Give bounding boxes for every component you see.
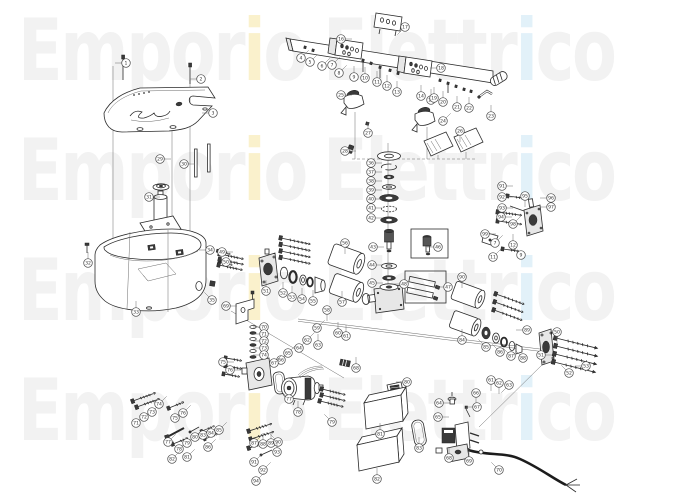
svg-text:52: 52 bbox=[566, 371, 572, 377]
svg-text:28: 28 bbox=[342, 149, 348, 155]
svg-text:66: 66 bbox=[278, 358, 284, 364]
svg-text:78: 78 bbox=[295, 410, 301, 416]
svg-text:79: 79 bbox=[184, 441, 190, 447]
svg-text:21: 21 bbox=[454, 105, 460, 111]
valve-washer-stack bbox=[362, 152, 404, 313]
svg-text:59: 59 bbox=[314, 326, 320, 332]
svg-text:74: 74 bbox=[156, 402, 162, 408]
svg-text:12: 12 bbox=[510, 243, 516, 249]
svg-text:41: 41 bbox=[368, 206, 374, 212]
svg-text:93: 93 bbox=[274, 450, 280, 456]
solenoid-valve bbox=[436, 392, 580, 492]
svg-text:61: 61 bbox=[343, 334, 349, 340]
svg-text:77: 77 bbox=[165, 440, 171, 446]
svg-text:5: 5 bbox=[309, 60, 312, 66]
svg-text:30: 30 bbox=[181, 162, 187, 168]
svg-text:19: 19 bbox=[431, 96, 437, 102]
svg-text:73: 73 bbox=[149, 410, 155, 416]
svg-text:71: 71 bbox=[133, 421, 139, 427]
svg-text:12: 12 bbox=[384, 84, 390, 90]
svg-text:6: 6 bbox=[321, 64, 324, 70]
top-cover-plate bbox=[104, 55, 215, 132]
svg-text:82: 82 bbox=[374, 477, 380, 483]
svg-text:50: 50 bbox=[223, 260, 229, 266]
piston bbox=[385, 229, 394, 252]
valve-body bbox=[368, 284, 404, 313]
svg-text:50: 50 bbox=[554, 330, 560, 336]
svg-text:70: 70 bbox=[496, 468, 502, 474]
svg-text:47: 47 bbox=[445, 285, 451, 291]
svg-text:68: 68 bbox=[446, 456, 452, 462]
svg-text:66: 66 bbox=[473, 391, 479, 397]
svg-text:7: 7 bbox=[331, 63, 334, 69]
svg-text:65: 65 bbox=[435, 415, 441, 421]
svg-text:83: 83 bbox=[200, 433, 206, 439]
svg-text:51: 51 bbox=[538, 353, 544, 359]
svg-text:54: 54 bbox=[299, 297, 305, 303]
svg-text:3: 3 bbox=[212, 111, 215, 117]
heater-column bbox=[140, 144, 210, 236]
svg-text:95: 95 bbox=[522, 194, 528, 200]
svg-text:40: 40 bbox=[368, 197, 374, 203]
svg-text:39: 39 bbox=[368, 188, 374, 194]
svg-text:87: 87 bbox=[251, 441, 257, 447]
svg-text:68: 68 bbox=[353, 366, 359, 372]
svg-text:69: 69 bbox=[223, 304, 229, 310]
svg-text:37: 37 bbox=[368, 170, 374, 176]
svg-text:45: 45 bbox=[369, 281, 375, 287]
svg-text:11: 11 bbox=[374, 80, 380, 86]
svg-text:38: 38 bbox=[368, 179, 374, 185]
svg-text:9: 9 bbox=[353, 75, 356, 81]
svg-text:90: 90 bbox=[459, 275, 465, 281]
svg-text:85: 85 bbox=[216, 428, 222, 434]
svg-text:8: 8 bbox=[338, 71, 341, 77]
svg-text:43: 43 bbox=[370, 245, 376, 251]
mid-bracket-valve bbox=[222, 291, 287, 395]
svg-text:75: 75 bbox=[220, 360, 226, 366]
svg-text:96: 96 bbox=[548, 196, 554, 202]
svg-text:79: 79 bbox=[329, 420, 335, 426]
svg-text:63: 63 bbox=[506, 383, 512, 389]
svg-text:9: 9 bbox=[520, 253, 523, 259]
svg-text:94: 94 bbox=[498, 215, 504, 221]
svg-text:51: 51 bbox=[263, 289, 269, 295]
svg-text:94: 94 bbox=[253, 479, 259, 485]
svg-text:67: 67 bbox=[271, 361, 277, 367]
svg-text:84: 84 bbox=[208, 431, 214, 437]
svg-text:18: 18 bbox=[438, 66, 444, 72]
svg-text:81: 81 bbox=[184, 455, 190, 461]
svg-text:92: 92 bbox=[499, 195, 505, 201]
power-cable bbox=[468, 450, 580, 492]
svg-text:83: 83 bbox=[416, 446, 422, 452]
svg-text:82: 82 bbox=[169, 457, 175, 463]
svg-text:89: 89 bbox=[524, 328, 530, 334]
svg-text:85: 85 bbox=[483, 345, 489, 351]
svg-text:89: 89 bbox=[268, 441, 274, 447]
svg-text:69: 69 bbox=[466, 459, 472, 465]
svg-text:29: 29 bbox=[157, 157, 163, 163]
svg-text:64: 64 bbox=[436, 401, 442, 407]
svg-text:62: 62 bbox=[496, 381, 502, 387]
svg-text:22: 22 bbox=[466, 106, 472, 112]
svg-text:17: 17 bbox=[402, 25, 408, 31]
svg-text:67: 67 bbox=[474, 405, 480, 411]
svg-text:77: 77 bbox=[286, 397, 292, 403]
svg-text:52: 52 bbox=[280, 291, 286, 297]
svg-text:35: 35 bbox=[209, 298, 215, 304]
svg-text:53: 53 bbox=[583, 364, 589, 370]
svg-text:65: 65 bbox=[285, 351, 291, 357]
svg-text:80: 80 bbox=[404, 380, 410, 386]
boiler-cylinder-1 bbox=[327, 243, 367, 275]
svg-text:49: 49 bbox=[219, 250, 225, 256]
svg-text:61: 61 bbox=[488, 378, 494, 384]
svg-text:46: 46 bbox=[435, 245, 441, 251]
svg-text:57: 57 bbox=[339, 300, 345, 306]
svg-text:87: 87 bbox=[508, 354, 514, 360]
svg-text:99: 99 bbox=[482, 232, 488, 238]
svg-text:31: 31 bbox=[146, 195, 152, 201]
svg-text:97: 97 bbox=[548, 205, 554, 211]
svg-text:90: 90 bbox=[275, 440, 281, 446]
svg-text:80: 80 bbox=[192, 435, 198, 441]
svg-text:62: 62 bbox=[304, 338, 310, 344]
svg-text:74: 74 bbox=[261, 353, 267, 359]
svg-text:91: 91 bbox=[251, 460, 257, 466]
svg-text:88: 88 bbox=[520, 356, 526, 362]
svg-text:88: 88 bbox=[260, 442, 266, 448]
svg-text:16: 16 bbox=[338, 37, 344, 43]
svg-text:33: 33 bbox=[133, 310, 139, 316]
svg-text:86: 86 bbox=[205, 445, 211, 451]
svg-text:25: 25 bbox=[338, 93, 344, 99]
svg-text:60: 60 bbox=[335, 331, 341, 337]
svg-text:11: 11 bbox=[490, 255, 496, 261]
svg-text:34: 34 bbox=[207, 248, 213, 254]
svg-text:53: 53 bbox=[289, 295, 295, 301]
svg-text:91: 91 bbox=[499, 184, 505, 190]
svg-text:1: 1 bbox=[125, 61, 128, 67]
boiler-cylinder-2 bbox=[328, 273, 365, 304]
svg-text:42: 42 bbox=[368, 216, 374, 222]
svg-text:2: 2 bbox=[200, 77, 203, 83]
svg-text:76: 76 bbox=[180, 411, 186, 417]
parts-catalog-page: EmporioElettrico EmporioElettrico Empori… bbox=[0, 0, 694, 500]
svg-text:86: 86 bbox=[497, 350, 503, 356]
svg-text:24: 24 bbox=[440, 119, 446, 125]
svg-text:92: 92 bbox=[260, 468, 266, 474]
svg-text:44: 44 bbox=[369, 263, 375, 269]
steam-knob-right bbox=[412, 106, 435, 132]
svg-text:72: 72 bbox=[141, 415, 147, 421]
svg-text:58: 58 bbox=[324, 308, 330, 314]
svg-text:23: 23 bbox=[488, 114, 494, 120]
group-head-flange bbox=[259, 249, 278, 286]
svg-text:32: 32 bbox=[85, 261, 91, 267]
svg-text:64: 64 bbox=[296, 346, 302, 352]
svg-text:84: 84 bbox=[459, 338, 465, 344]
svg-text:81: 81 bbox=[377, 432, 383, 438]
svg-text:27: 27 bbox=[365, 131, 371, 137]
svg-text:75: 75 bbox=[172, 416, 178, 422]
svg-text:10: 10 bbox=[362, 76, 368, 82]
svg-text:63: 63 bbox=[315, 343, 321, 349]
svg-text:36: 36 bbox=[368, 161, 374, 167]
svg-text:48: 48 bbox=[401, 282, 407, 288]
exploded-parts-diagram: 1234567891011121314151617181920212223242… bbox=[0, 0, 694, 500]
svg-text:20: 20 bbox=[440, 100, 446, 106]
svg-text:55: 55 bbox=[310, 299, 316, 305]
svg-text:4: 4 bbox=[300, 56, 303, 62]
casing-boxes bbox=[357, 382, 427, 471]
drip-tray-wedges bbox=[424, 128, 483, 156]
svg-text:13: 13 bbox=[394, 90, 400, 96]
svg-text:76: 76 bbox=[227, 368, 233, 374]
svg-text:98: 98 bbox=[510, 222, 516, 228]
svg-text:93: 93 bbox=[499, 206, 505, 212]
svg-text:26: 26 bbox=[457, 129, 463, 135]
svg-text:14: 14 bbox=[418, 94, 424, 100]
svg-text:56: 56 bbox=[342, 241, 348, 247]
svg-text:7: 7 bbox=[494, 241, 497, 247]
detail-box-piston bbox=[411, 229, 448, 258]
